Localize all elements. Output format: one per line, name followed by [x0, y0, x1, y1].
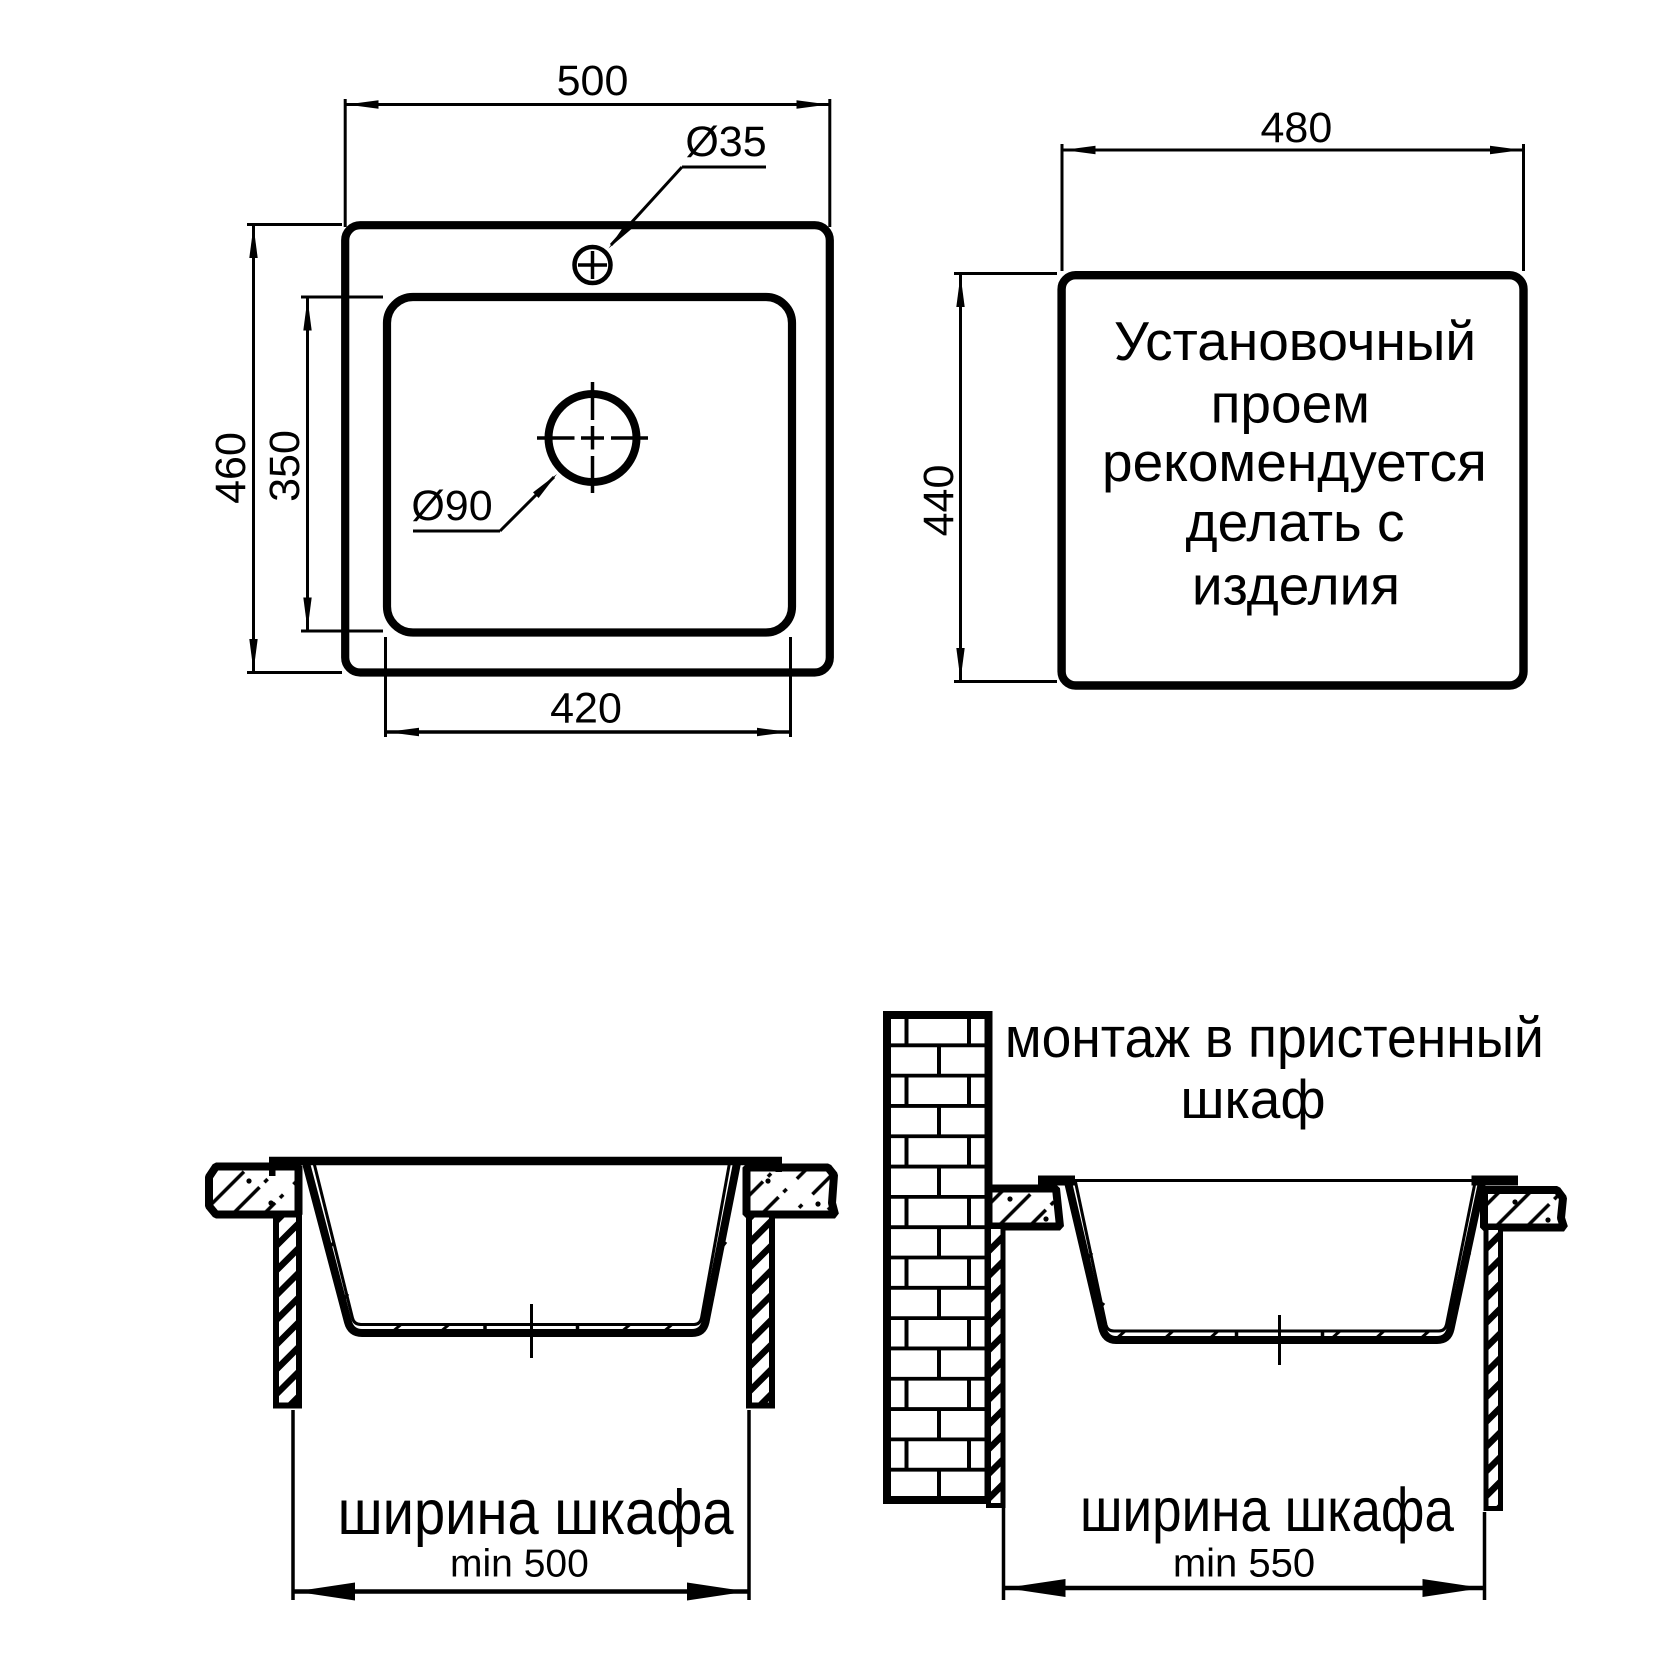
svg-text:изделия: изделия: [1192, 555, 1400, 617]
svg-text:420: 420: [550, 685, 622, 733]
svg-text:460: 460: [207, 432, 255, 504]
svg-text:Ø35: Ø35: [685, 118, 766, 166]
svg-text:проем: проем: [1211, 373, 1370, 435]
svg-text:min 550: min 550: [1173, 1542, 1315, 1586]
svg-text:ширина шкафа: ширина шкафа: [338, 1478, 735, 1548]
svg-text:500: 500: [557, 57, 629, 105]
svg-text:Ø90: Ø90: [411, 482, 492, 530]
svg-text:350: 350: [261, 430, 309, 502]
svg-text:480: 480: [1261, 104, 1333, 152]
svg-text:ширина шкафа: ширина шкафа: [1080, 1476, 1454, 1544]
svg-text:Установочный: Установочный: [1114, 310, 1476, 372]
svg-text:монтаж в пристенный: монтаж в пристенный: [1005, 1006, 1544, 1070]
svg-text:делать с: делать с: [1186, 491, 1405, 553]
svg-text:шкаф: шкаф: [1180, 1068, 1325, 1130]
svg-text:min 500: min 500: [450, 1543, 589, 1586]
svg-text:440: 440: [915, 465, 963, 537]
svg-text:рекомендуется: рекомендуется: [1102, 431, 1487, 493]
